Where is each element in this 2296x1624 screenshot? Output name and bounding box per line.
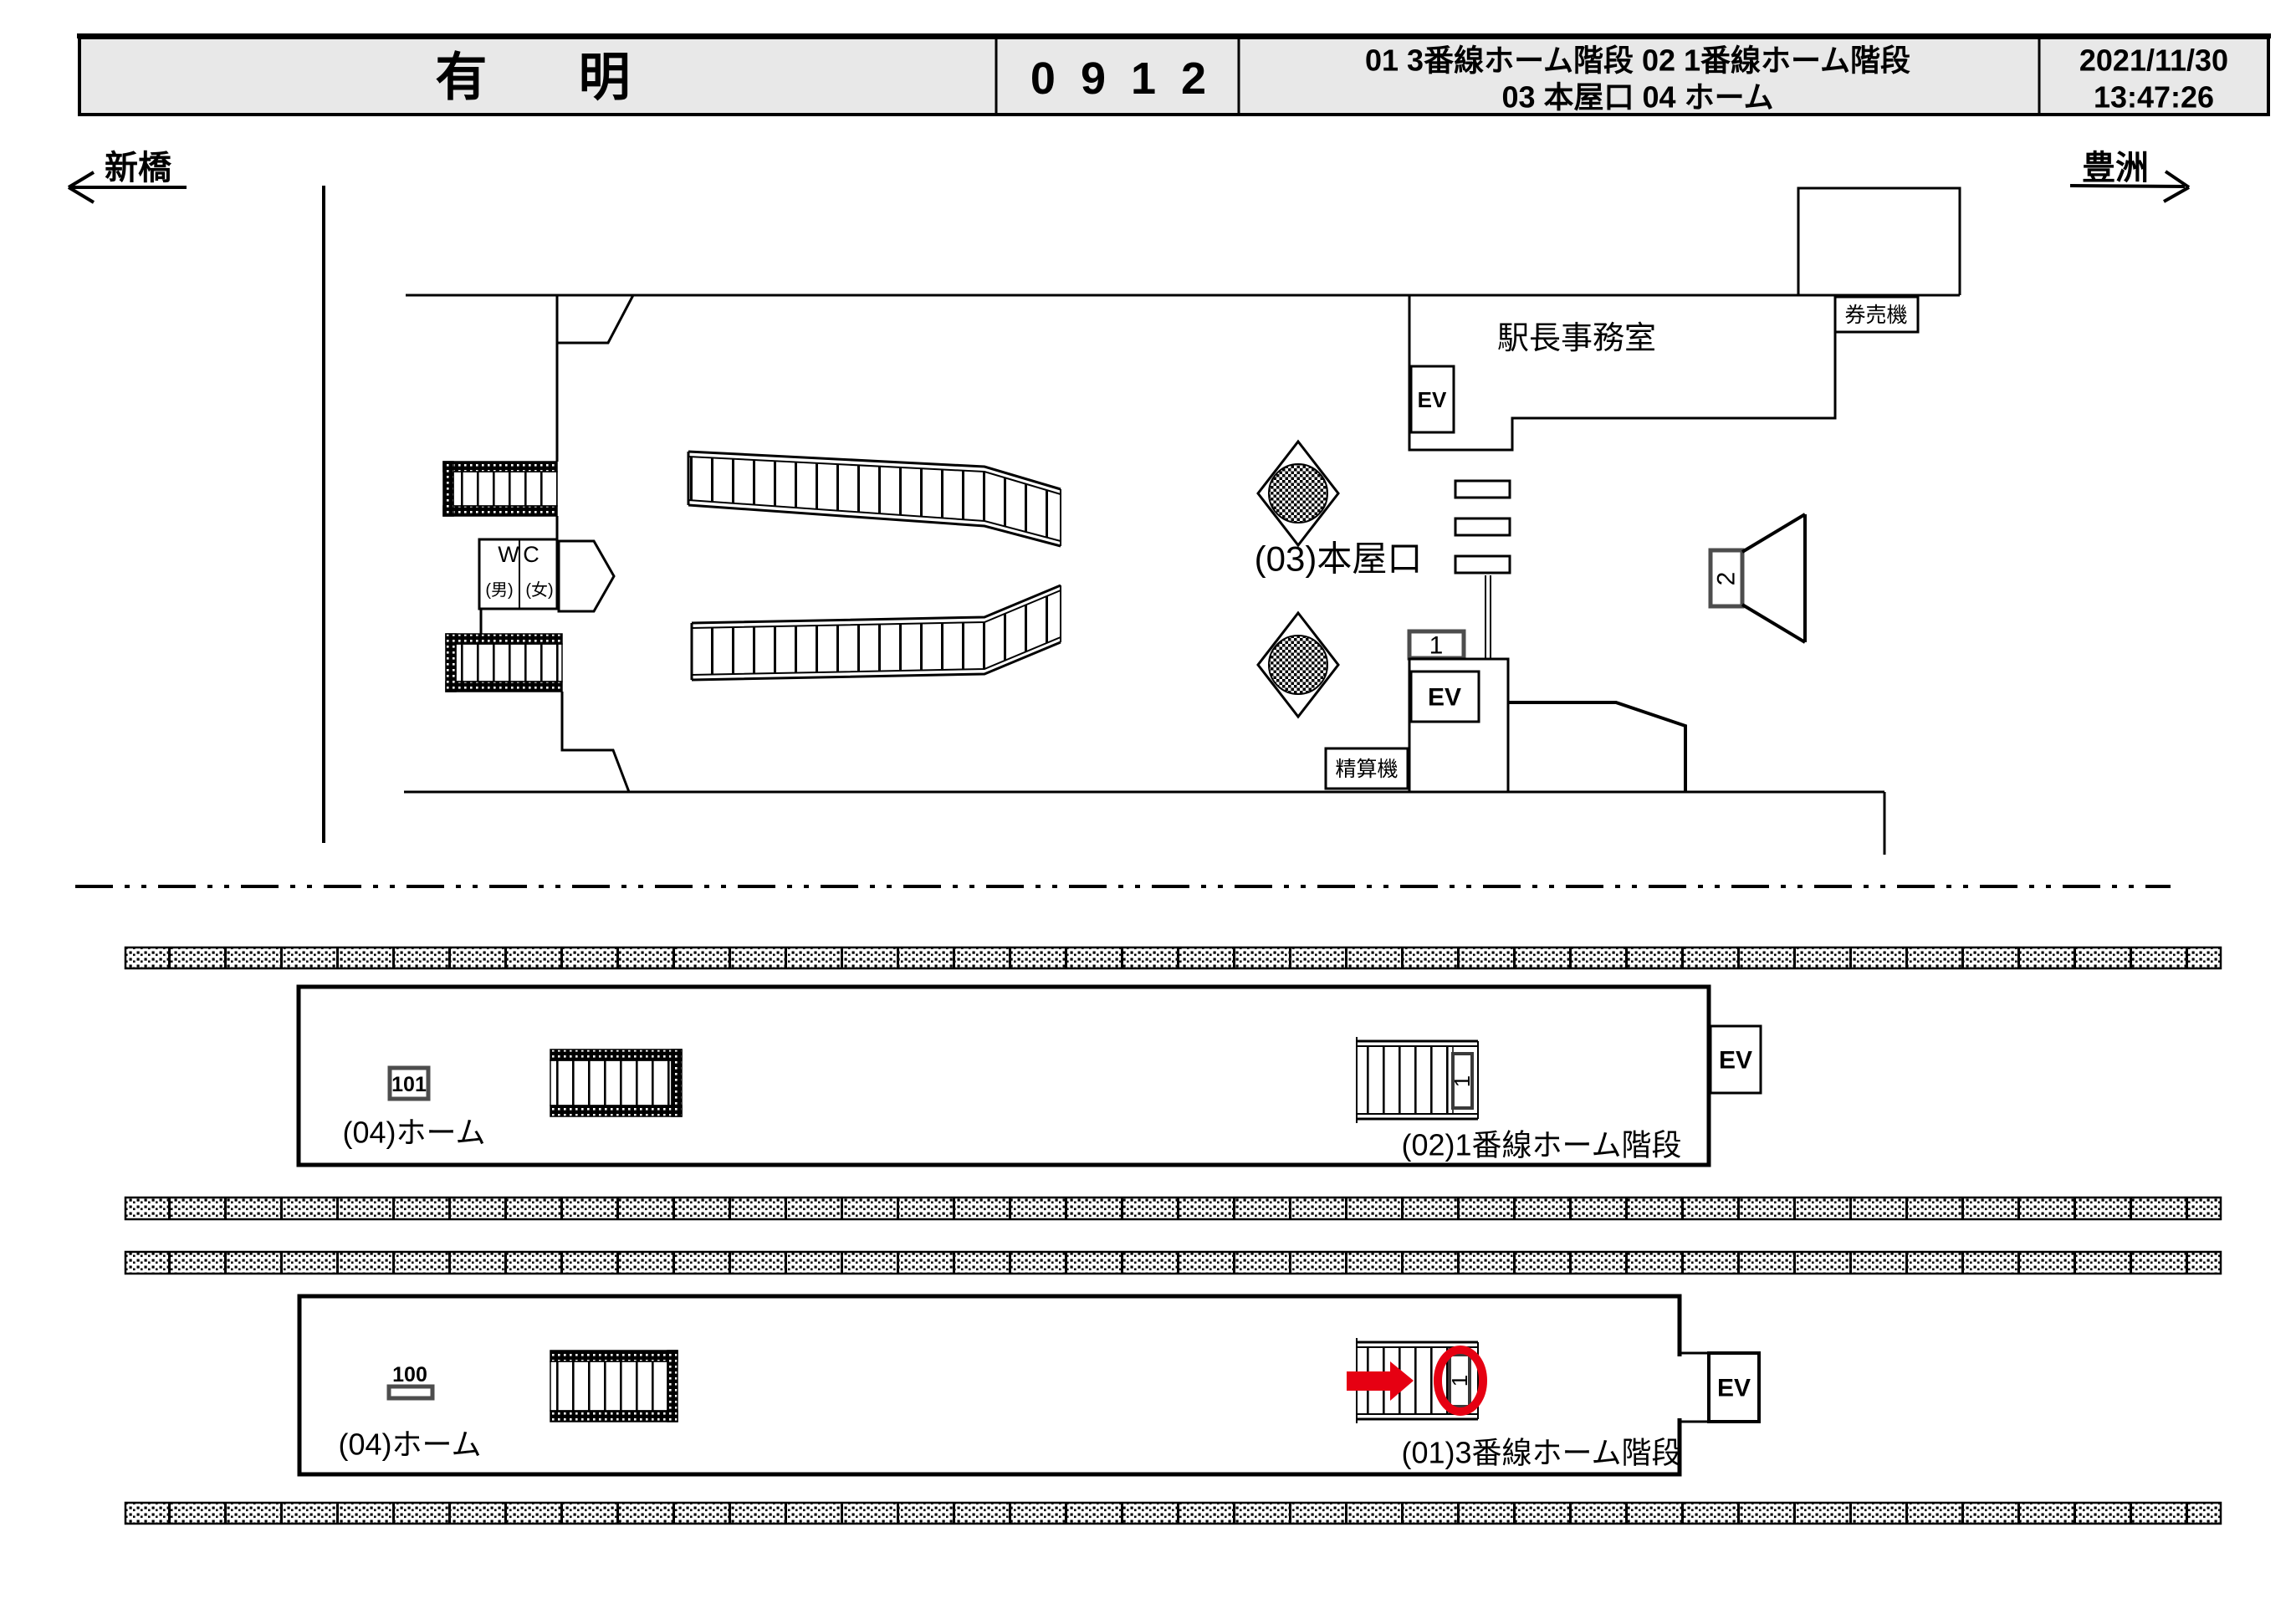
- header-bar: 有 明 0912 01 3番線ホーム階段 02 1番線ホーム階段 03 本屋口 …: [77, 36, 2271, 115]
- track-band-2: [125, 1198, 2221, 1219]
- lower-left-step: [562, 692, 629, 792]
- ticket-machine-label: 券売機: [1844, 304, 1907, 327]
- platform1-position-label: 101: [391, 1073, 427, 1096]
- wc-c-label: C: [523, 542, 539, 567]
- platform1-name-label: (04)ホーム: [343, 1116, 486, 1150]
- camera-marker-2: 2: [1710, 514, 1805, 642]
- concourse-topright-bump: [1798, 188, 1960, 295]
- header-date: 2021/11/30: [2079, 43, 2228, 78]
- camera-marker-1: 1: [1409, 631, 1464, 660]
- station-code: 0912: [1030, 54, 1231, 104]
- platform1-elevator: EV: [1710, 1026, 1761, 1093]
- platform2-ev-label: EV: [1717, 1375, 1751, 1402]
- platform-2: EV 100 (04)ホーム 1 (01)3番線ホーム階段: [299, 1296, 1759, 1474]
- camera-marker-2-label: 2: [1713, 572, 1741, 586]
- platform2-position-label: 100: [392, 1363, 427, 1387]
- platform1-stair-camera-label: 1: [1450, 1075, 1475, 1087]
- platform2-stair-label: (01)3番線ホーム階段: [1402, 1436, 1682, 1470]
- platform2-hatched-stair: [550, 1351, 678, 1422]
- direction-shimbashi: 新橋: [69, 150, 187, 202]
- track-band-1: [125, 947, 2221, 968]
- platform2-stair-camera-label: 1: [1447, 1375, 1472, 1387]
- wc-area: W C (男) (女): [479, 539, 614, 611]
- stair-center-upper: [688, 452, 1061, 546]
- track-band-3: [125, 1252, 2221, 1274]
- platform-1: 101 (04)ホーム 1 (02)1番線ホーム階段 EV: [299, 987, 1761, 1165]
- track-band-4: [125, 1503, 2221, 1524]
- wc-female-label: (女): [525, 580, 553, 600]
- camera-list-row2: 03 本屋口 04 ホーム: [1501, 80, 1773, 115]
- camera-list-row1: 01 3番線ホーム階段 02 1番線ホーム階段: [1365, 43, 1910, 78]
- direction-toyosu: 豊洲: [2070, 150, 2189, 202]
- fare-adjust-label: 精算機: [1335, 758, 1398, 781]
- platform2-elevator: EV: [1709, 1353, 1759, 1422]
- stair-upper-left: [443, 462, 557, 516]
- direction-left-label: 新橋: [105, 150, 171, 186]
- platform2-position-marker: 100: [389, 1363, 432, 1398]
- concourse-notch: [557, 295, 633, 343]
- exit-03-label: (03)本屋口: [1255, 539, 1423, 579]
- direction-right-label: 豊洲: [2082, 150, 2149, 186]
- fare-adjust-machine: 精算機: [1326, 748, 1408, 789]
- stair-lower-left: [446, 634, 562, 692]
- machine-room: EV: [1409, 659, 1508, 792]
- platform1-stair-label: (02)1番線ホーム階段: [1402, 1128, 1682, 1162]
- platform1-hatched-stair: [550, 1049, 682, 1116]
- platform2-name-label: (04)ホーム: [339, 1427, 482, 1462]
- pillar-diamond-lower: [1258, 613, 1338, 717]
- wc-w-label: W: [498, 542, 519, 567]
- header-time: 13:47:26: [2094, 80, 2214, 115]
- camera-marker-1-label: 1: [1429, 632, 1444, 660]
- wc-male-label: (男): [485, 581, 513, 600]
- elevator-concourse-label: EV: [1428, 684, 1461, 712]
- platform1-position-marker: 101: [390, 1068, 428, 1099]
- stair-center-lower: [692, 585, 1061, 680]
- concourse-ramp: [1508, 702, 1685, 792]
- station-office: 券売機 駅長事務室 EV: [1409, 295, 1918, 450]
- wc-entry-pentagon: [559, 541, 614, 611]
- pillar-diamond-upper: [1258, 442, 1338, 545]
- office-label: 駅長事務室: [1497, 321, 1656, 356]
- platform1-ev-label: EV: [1719, 1047, 1752, 1075]
- station-name: 有 明: [435, 49, 668, 107]
- concourse-plan: W C (男) (女): [324, 186, 1960, 855]
- elevator-office-label: EV: [1418, 387, 1447, 412]
